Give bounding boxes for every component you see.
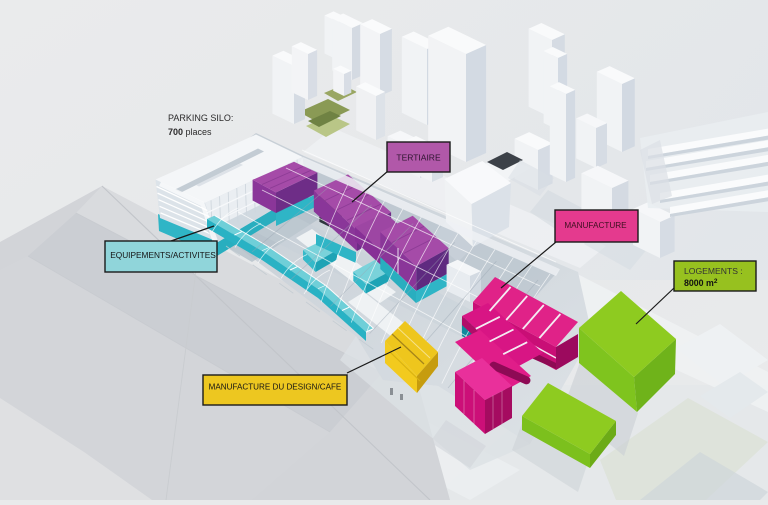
svg-text:LOGEMENTS :: LOGEMENTS : (684, 266, 743, 276)
svg-text:8000 m2: 8000 m2 (684, 278, 718, 288)
svg-text:700 places: 700 places (168, 127, 212, 137)
svg-text:EQUIPEMENTS/ACTIVITES: EQUIPEMENTS/ACTIVITES (110, 250, 216, 260)
svg-text:PARKING SILO:: PARKING SILO: (168, 113, 233, 123)
svg-text:MANUFACTURE DU DESIGN/CAFE: MANUFACTURE DU DESIGN/CAFE (209, 383, 342, 392)
svg-text:TERTIAIRE: TERTIAIRE (396, 153, 441, 163)
svg-text:MANUFACTURE: MANUFACTURE (564, 221, 627, 230)
